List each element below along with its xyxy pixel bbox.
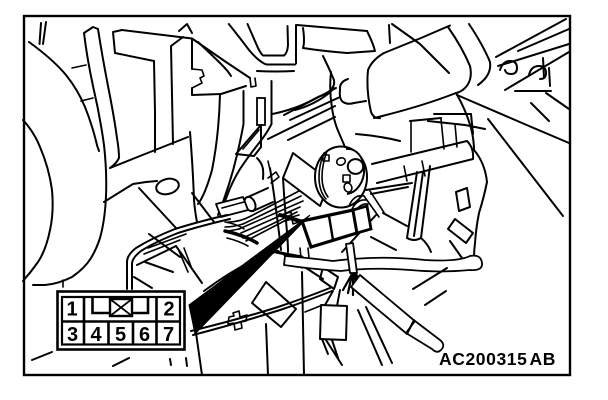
svg-text:4: 4 [90, 324, 102, 346]
svg-text:AC200315 AB: AC200315 AB [439, 349, 556, 369]
svg-text:1: 1 [66, 299, 77, 321]
svg-text:6: 6 [139, 324, 150, 346]
svg-text:3: 3 [67, 324, 78, 346]
svg-text:7: 7 [163, 324, 174, 346]
svg-text:2: 2 [163, 299, 174, 321]
svg-text:5: 5 [115, 324, 126, 346]
